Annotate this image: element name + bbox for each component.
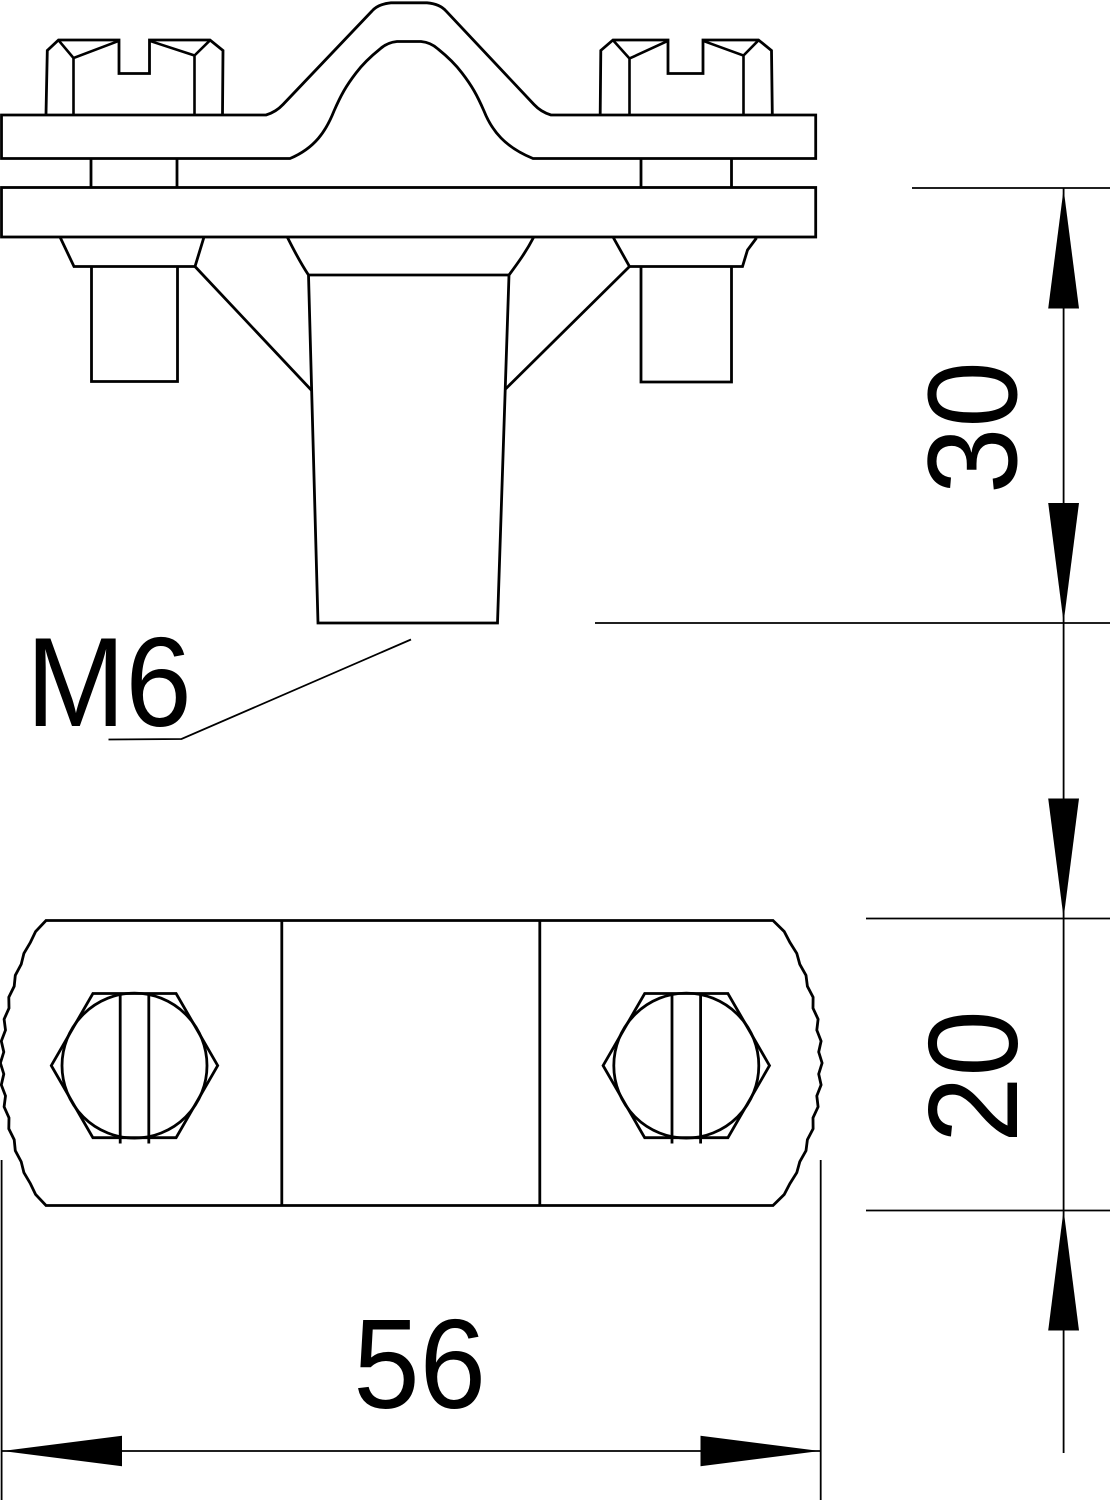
svg-text:20: 20	[903, 1010, 1045, 1143]
svg-text:30: 30	[902, 361, 1044, 494]
svg-text:56: 56	[353, 1294, 486, 1436]
svg-text:M6: M6	[26, 612, 192, 754]
